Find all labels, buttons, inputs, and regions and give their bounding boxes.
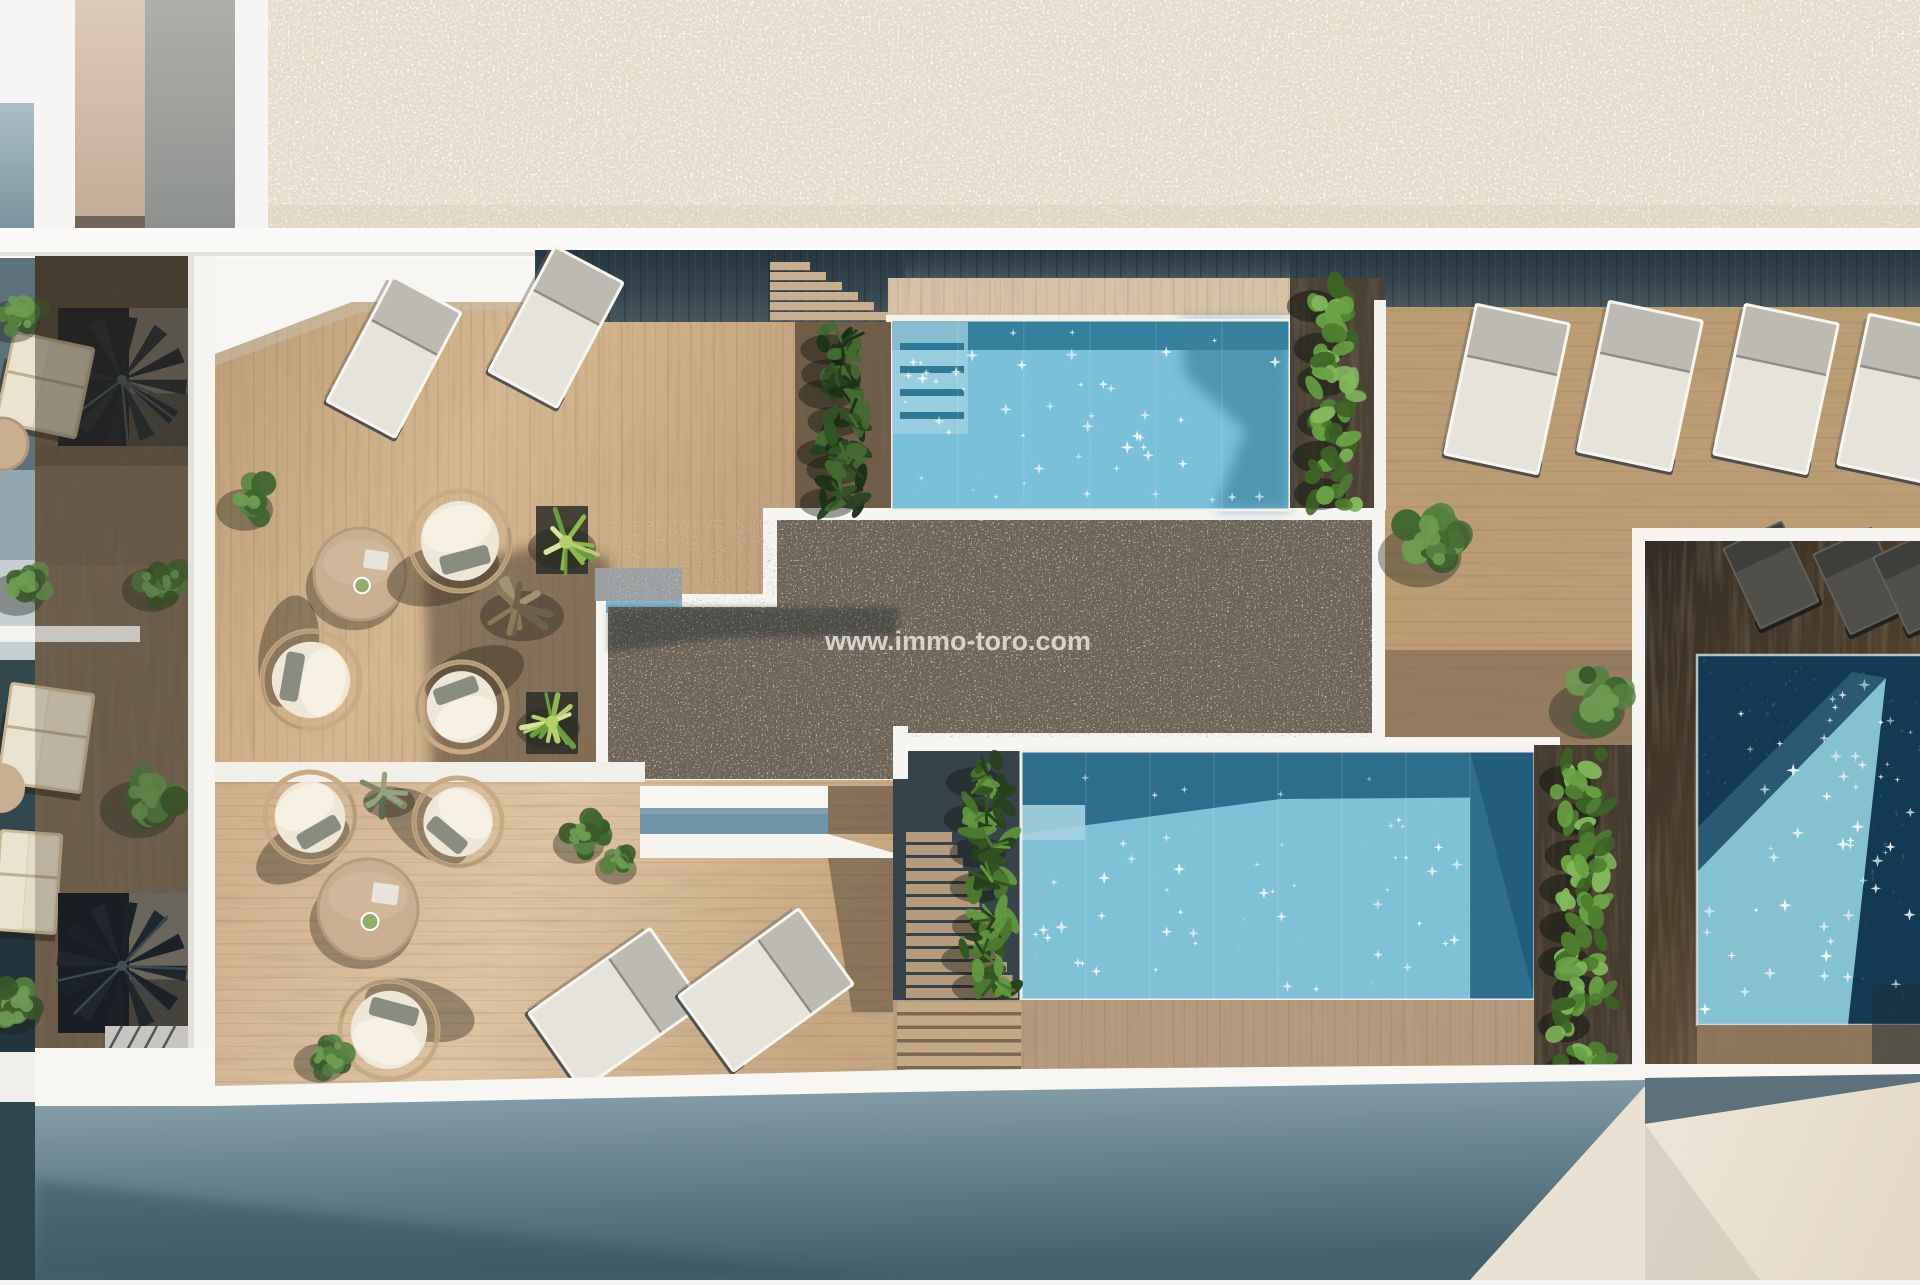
svg-text:www.immo-toro.com: www.immo-toro.com — [824, 626, 1091, 656]
